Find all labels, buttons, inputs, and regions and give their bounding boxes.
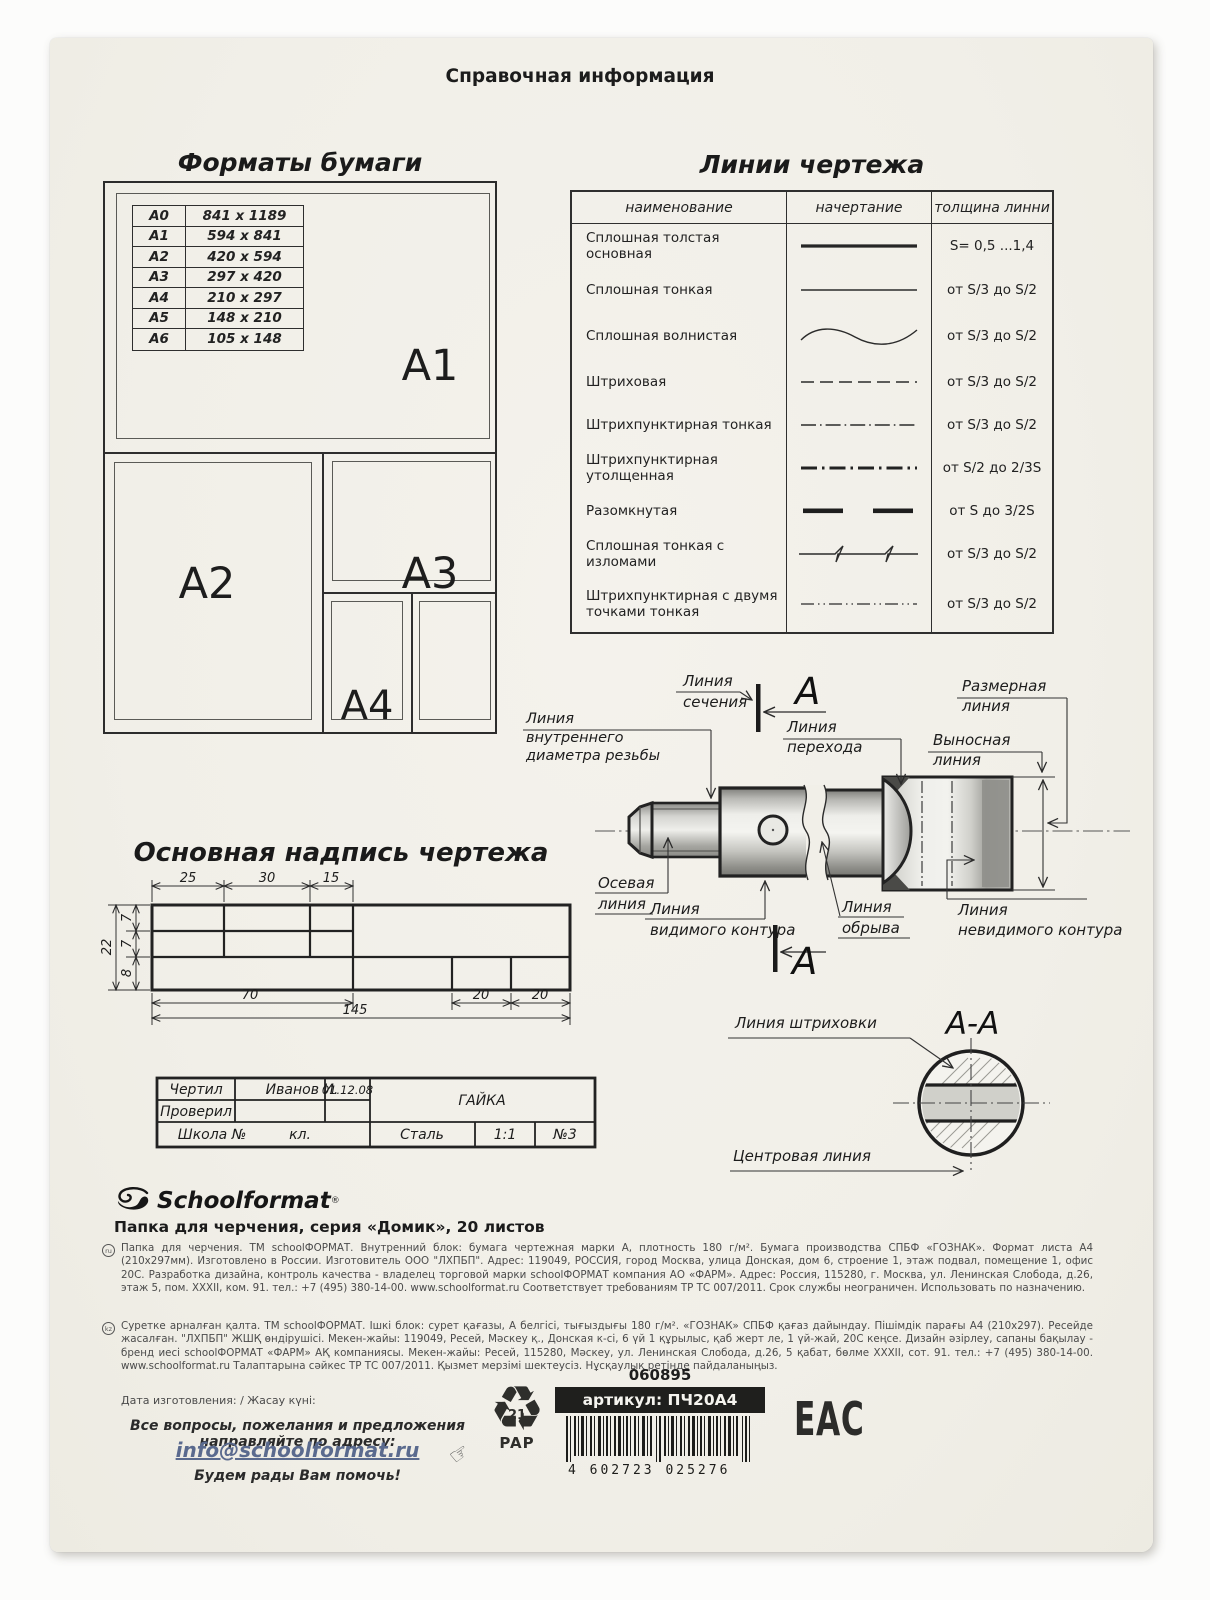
kz-mark-icon: kz xyxy=(102,1322,115,1335)
main-cylinder xyxy=(720,788,806,876)
svg-text:Чертил: Чертил xyxy=(169,1082,222,1098)
table-row: A2420 x 594 xyxy=(133,247,303,268)
brand-logo: Schoolformat ® xyxy=(113,1186,340,1216)
svg-text:8: 8 xyxy=(120,969,135,977)
recycling-symbol: ♻ 21 PAP xyxy=(482,1378,552,1452)
svg-text:20: 20 xyxy=(532,988,549,1003)
svg-text:01.12.08: 01.12.08 xyxy=(322,1083,373,1097)
sheet-a5-blank xyxy=(419,601,491,720)
line-row-dash-two-dot: Штрихпунктирная с двумя точками тонкая о… xyxy=(572,576,1052,632)
eac-mark: ЕАС xyxy=(794,1394,865,1444)
formats-heading: Форматы бумаги xyxy=(103,148,497,177)
line-sample-dashdot-thin xyxy=(787,404,932,446)
line-types-table: наименование начертание толщина линни Сп… xyxy=(570,190,1054,634)
label-visible-contour-line: Линиявидимого контура xyxy=(650,899,795,941)
svg-text:Проверил: Проверил xyxy=(160,1104,232,1120)
formats-table: A0841 x 1189 A1594 x 841 A2420 x 594 A32… xyxy=(132,205,304,351)
svg-text:30: 30 xyxy=(259,871,276,886)
table-row: A4210 x 297 xyxy=(133,288,303,309)
line-row-dashed: Штриховая от S/3 до S/2 xyxy=(572,360,1052,404)
paper-formats-diagram: A1 A2 A3 A4 A0841 x 1189 A1594 x 841 A24… xyxy=(103,181,497,734)
table-row: A6105 x 148 xyxy=(133,329,303,350)
sku-badge: артикул: ПЧ20А4 xyxy=(555,1387,765,1413)
label-dimension-line: Размернаялиния xyxy=(962,676,1046,716)
section-title-aa: A-A xyxy=(935,1006,1010,1042)
titleblock-example: Чертил Иванов И. 01.12.08 ГАЙКА Проверил… xyxy=(150,1070,610,1160)
brand-name: Schoolformat xyxy=(157,1188,331,1214)
table-header: наименование начертание толщина линни xyxy=(572,192,1052,224)
svg-text:145: 145 xyxy=(343,1003,368,1018)
titleblock-dim-values: 25 30 15 22 7 7 8 70 20 20 145 xyxy=(100,871,548,1018)
line-sample-dashdot-thick xyxy=(787,446,932,490)
svg-text:20: 20 xyxy=(473,988,490,1003)
line-row-wavy: Сплошная волнистая от S/3 до S/2 xyxy=(572,312,1052,360)
packaging-back-page: Справочная информация Форматы бумаги A1 … xyxy=(0,0,1210,1600)
titleblock-dim-lines xyxy=(108,880,570,1025)
svg-text:1:1: 1:1 xyxy=(494,1127,517,1143)
label-center-line: Центровая линия xyxy=(733,1146,871,1167)
section-letter-bottom: A xyxy=(792,940,817,983)
table-row: A1594 x 841 xyxy=(133,227,303,248)
titleblock-heading: Основная надпись чертежа xyxy=(100,838,582,868)
table-row: A5148 x 210 xyxy=(133,309,303,330)
line-row-dashdot-thick: Штрихпунктирная утолщенная от S/2 до 2/3… xyxy=(572,446,1052,490)
line-sample-dash-two-dot xyxy=(787,576,932,632)
registered-mark: ® xyxy=(331,1196,340,1206)
svg-text:22: 22 xyxy=(100,939,115,956)
label-a3: A3 xyxy=(390,549,470,599)
barcode-bars xyxy=(566,1416,750,1462)
svg-text:кл.: кл. xyxy=(289,1127,311,1143)
barcode: 4 602723 025276 xyxy=(562,1416,762,1480)
svg-text:70: 70 xyxy=(242,988,259,1003)
schoolformat-bird-icon xyxy=(113,1187,153,1215)
product-code: 060895 xyxy=(555,1366,765,1384)
barcode-digits: 4 602723 025276 xyxy=(568,1463,730,1476)
legal-text-ru: Папка для черчения. ТМ schoolФОРМАТ. Вну… xyxy=(121,1242,1093,1295)
line-sample-solid-thick xyxy=(787,224,932,268)
paper-card: Справочная информация Форматы бумаги A1 … xyxy=(50,38,1153,1552)
line-sample-zigzag xyxy=(787,532,932,576)
divider-h1 xyxy=(105,452,495,454)
ru-mark-icon: ru xyxy=(102,1244,115,1257)
threaded-end xyxy=(629,803,720,857)
svg-text:№3: №3 xyxy=(552,1127,576,1143)
table-row: A0841 x 1189 xyxy=(133,206,303,227)
lines-heading: Линии чертежа xyxy=(570,150,1054,179)
titleblock-example-text: Чертил Иванов И. 01.12.08 ГАЙКА Проверил… xyxy=(160,1082,577,1143)
line-sample-open xyxy=(787,490,932,532)
svg-text:Сталь: Сталь xyxy=(400,1127,444,1143)
line-row-zigzag: Сплошная тонкая с изломами от S/3 до S/2 xyxy=(572,532,1052,576)
svg-text:ГАЙКА: ГАЙКА xyxy=(458,1091,505,1109)
label-transition-line: Линияперехода xyxy=(787,717,862,757)
svg-text:Школа №: Школа № xyxy=(178,1127,247,1143)
label-break-line: Линияобрыва xyxy=(842,897,900,939)
shaft-after-break xyxy=(820,790,885,876)
line-sample-solid-thin xyxy=(787,268,932,312)
line-row-open: Разомкнутая от S до 3/2S xyxy=(572,490,1052,532)
label-extension-line: Выноснаялиния xyxy=(933,730,1010,770)
break-gap xyxy=(803,785,830,880)
label-a4: A4 xyxy=(327,683,407,729)
line-sample-wavy xyxy=(787,312,932,360)
manufacture-date-label: Дата изготовления: / Жасау күні: xyxy=(121,1394,316,1407)
label-hatch-line: Линия штриховки xyxy=(735,1013,877,1034)
thanks-line: Будем рады Вам помочь! xyxy=(125,1468,470,1484)
recycle-number: 21 xyxy=(482,1408,552,1423)
line-row-solid-thick: Сплошная толстая основная S= 0,5 ...1,4 xyxy=(572,224,1052,268)
svg-text:25: 25 xyxy=(180,871,197,886)
svg-text:7: 7 xyxy=(120,913,135,922)
label-a1: A1 xyxy=(390,341,470,391)
svg-text:7: 7 xyxy=(120,939,135,948)
titleblock-dimensioned: 25 30 15 22 7 7 8 70 20 20 145 xyxy=(100,870,630,1070)
section-letter-top: A xyxy=(795,670,820,713)
line-sample-dashed xyxy=(787,360,932,404)
label-inner-diameter-line: Линиявнутреннегодиаметра резьбы xyxy=(526,710,660,766)
line-row-dashdot-thin: Штрихпунктирная тонкая от S/3 до S/2 xyxy=(572,404,1052,446)
page-title: Справочная информация xyxy=(380,66,780,87)
svg-text:15: 15 xyxy=(323,871,340,886)
label-section-line: Линиясечения xyxy=(683,671,747,713)
email-link[interactable]: info@schoolformat.ru xyxy=(125,1438,470,1462)
dimension-lines xyxy=(1012,777,1055,890)
label-hidden-contour-line: Линияневидимого контура xyxy=(958,900,1122,940)
section-view-aa xyxy=(878,1038,1064,1170)
label-a2: A2 xyxy=(167,559,247,609)
table-row: A3297 x 420 xyxy=(133,268,303,289)
product-title: Папка для черчения, серия «Домик», 20 ли… xyxy=(114,1218,545,1236)
divider-v2 xyxy=(411,592,413,732)
line-row-solid-thin: Сплошная тонкая от S/3 до S/2 xyxy=(572,268,1052,312)
